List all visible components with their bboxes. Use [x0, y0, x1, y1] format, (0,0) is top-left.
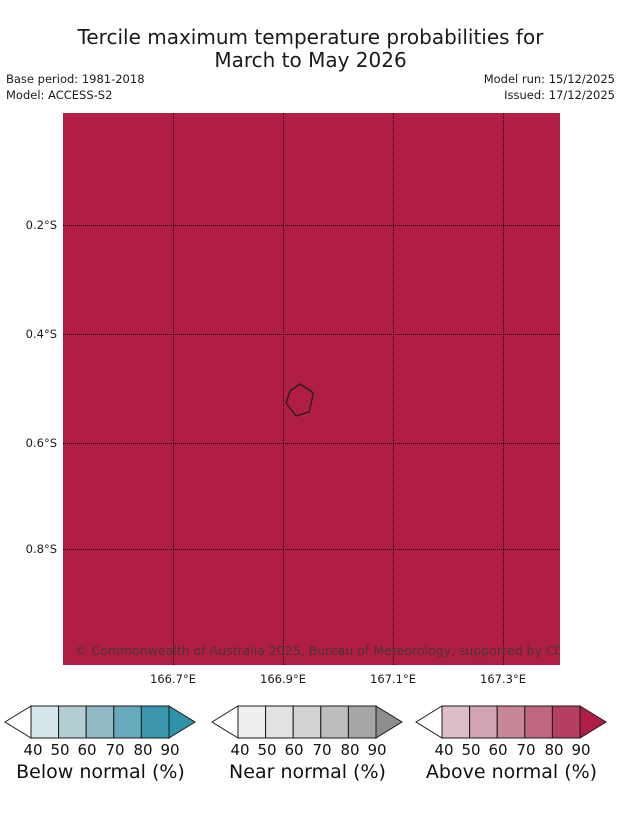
colorbar-segment: [552, 706, 580, 738]
legend-tick: 70: [312, 741, 331, 759]
x-axis-tick-label: 166.9°E: [238, 671, 328, 687]
legend-tick-row: 40 50 60 70 80 90: [414, 741, 609, 759]
meta-model: Model: ACCESS-S2: [6, 87, 145, 103]
x-axis-tick-label: 166.7°E: [128, 671, 218, 687]
metadata-left: Base period: 1981-2018 Model: ACCESS-S2: [6, 71, 145, 103]
y-axis-tick-label: 0.4°S: [0, 326, 57, 342]
legend-arrow-right: [376, 706, 402, 738]
figure: Tercile maximum temperature probabilitie…: [0, 0, 621, 839]
legend-above-normal: 40 50 60 70 80 90 Above normal (%): [414, 705, 609, 785]
legend-tick: 80: [340, 741, 359, 759]
colorbar-segment: [321, 706, 349, 738]
colorbar-above-normal: [414, 705, 609, 739]
colorbar-segment: [31, 706, 59, 738]
legend-tick: 50: [257, 741, 276, 759]
map-area: © Commonwealth of Australia 2025, Bureau…: [63, 113, 560, 665]
colorbar-segment: [293, 706, 321, 738]
colorbar-below-normal: [3, 705, 198, 739]
colorbar-segment: [114, 706, 142, 738]
legend-tick: 70: [105, 741, 124, 759]
legend-tick: 90: [160, 741, 179, 759]
colorbar-segment: [141, 706, 169, 738]
legend-tick: 90: [367, 741, 386, 759]
legend-below-normal: 40 50 60 70 80 90 Below normal (%): [3, 705, 198, 785]
legend-tick: 70: [516, 741, 535, 759]
colorbar-segment: [59, 706, 87, 738]
legend-arrow-right: [169, 706, 195, 738]
legend-near-normal: 40 50 60 70 80 90 Near normal (%): [210, 705, 405, 785]
figure-title-line2: March to May 2026: [0, 49, 621, 72]
metadata-right: Model run: 15/12/2025 Issued: 17/12/2025: [484, 71, 615, 103]
legend-tick-row: 40 50 60 70 80 90: [3, 741, 198, 759]
legend-title: Near normal (%): [210, 761, 405, 783]
legend-tick: 50: [461, 741, 480, 759]
meta-issued: Issued: 17/12/2025: [484, 87, 615, 103]
x-axis-tick-label: 167.1°E: [348, 671, 438, 687]
figure-title-line1: Tercile maximum temperature probabilitie…: [0, 26, 621, 49]
legend-tick: 40: [230, 741, 249, 759]
colorbar-segment: [348, 706, 376, 738]
legend-title: Above normal (%): [414, 761, 609, 783]
legend-tick-row: 40 50 60 70 80 90: [210, 741, 405, 759]
colorbar-segment: [266, 706, 294, 738]
legend-tick: 60: [488, 741, 507, 759]
colorbar-near-normal: [210, 705, 405, 739]
meta-base-period: Base period: 1981-2018: [6, 71, 145, 87]
meta-model-run: Model run: 15/12/2025: [484, 71, 615, 87]
legend-tick: 40: [23, 741, 42, 759]
colorbar-segment: [470, 706, 498, 738]
island-coastline: [286, 384, 314, 416]
figure-title: Tercile maximum temperature probabilitie…: [0, 26, 621, 72]
legend-tick: 50: [50, 741, 69, 759]
island-outline: [63, 113, 560, 665]
legend-tick: 90: [571, 741, 590, 759]
legend-arrow-left: [5, 706, 31, 738]
x-axis-tick-label: 167.3°E: [458, 671, 548, 687]
colorbar-segment: [525, 706, 553, 738]
legend-arrow-right: [580, 706, 606, 738]
legend-title: Below normal (%): [3, 761, 198, 783]
legend-arrow-left: [212, 706, 238, 738]
legend-arrow-left: [416, 706, 442, 738]
legend-tick: 60: [77, 741, 96, 759]
y-axis-tick-label: 0.8°S: [0, 541, 57, 557]
legend-tick: 80: [544, 741, 563, 759]
colorbar-segment: [86, 706, 114, 738]
y-axis-tick-label: 0.2°S: [0, 217, 57, 233]
colorbar-segment: [442, 706, 470, 738]
colorbar-segment: [238, 706, 266, 738]
y-axis-tick-label: 0.6°S: [0, 435, 57, 451]
legend-tick: 40: [434, 741, 453, 759]
legend-tick: 80: [133, 741, 152, 759]
copyright-text: © Commonwealth of Australia 2025, Bureau…: [75, 643, 560, 658]
legend-tick: 60: [284, 741, 303, 759]
colorbar-segment: [497, 706, 525, 738]
